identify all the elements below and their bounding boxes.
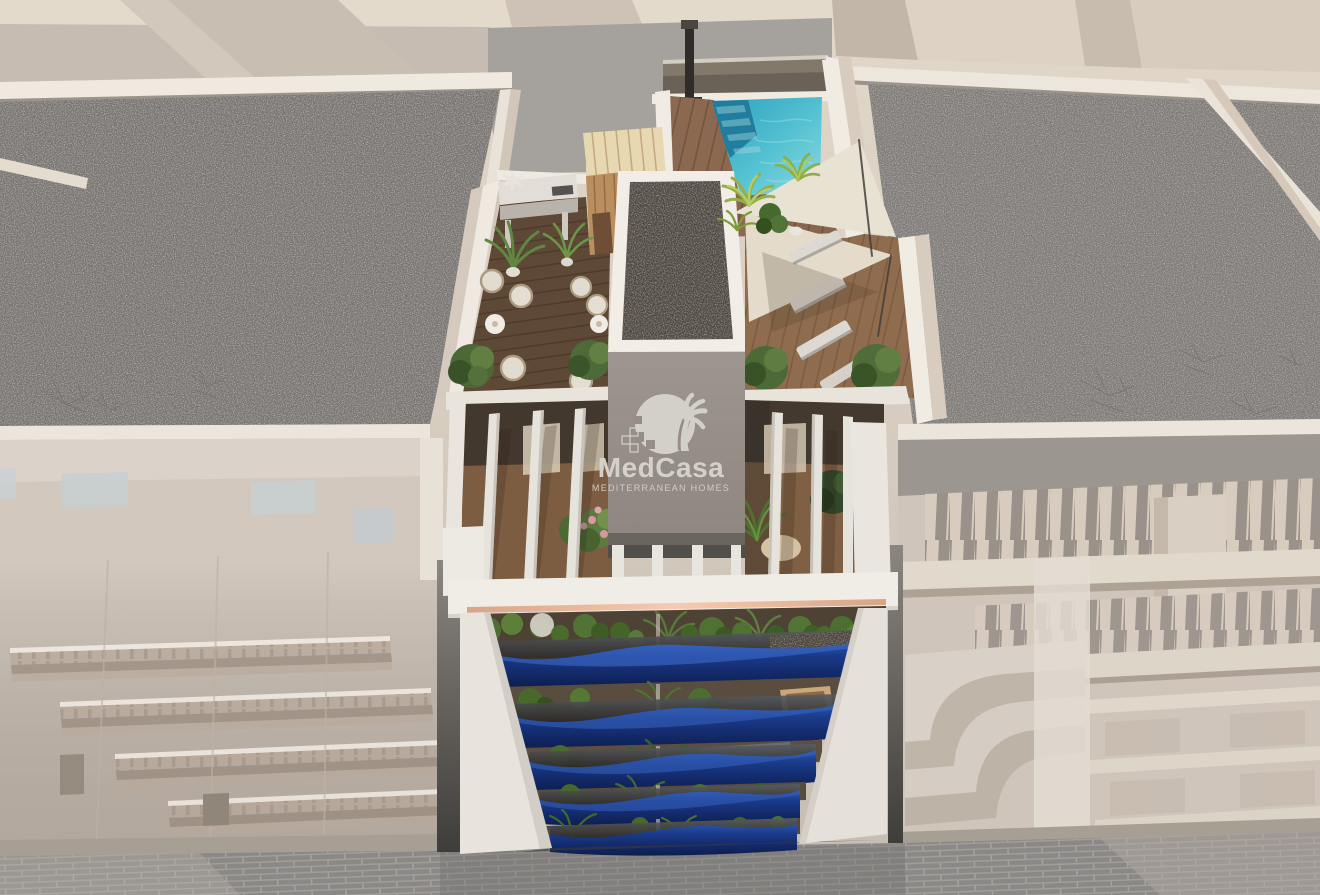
svg-text:MedCasa: MedCasa — [598, 452, 724, 483]
svg-text:MEDITERRANEAN HOMES: MEDITERRANEAN HOMES — [592, 483, 730, 493]
